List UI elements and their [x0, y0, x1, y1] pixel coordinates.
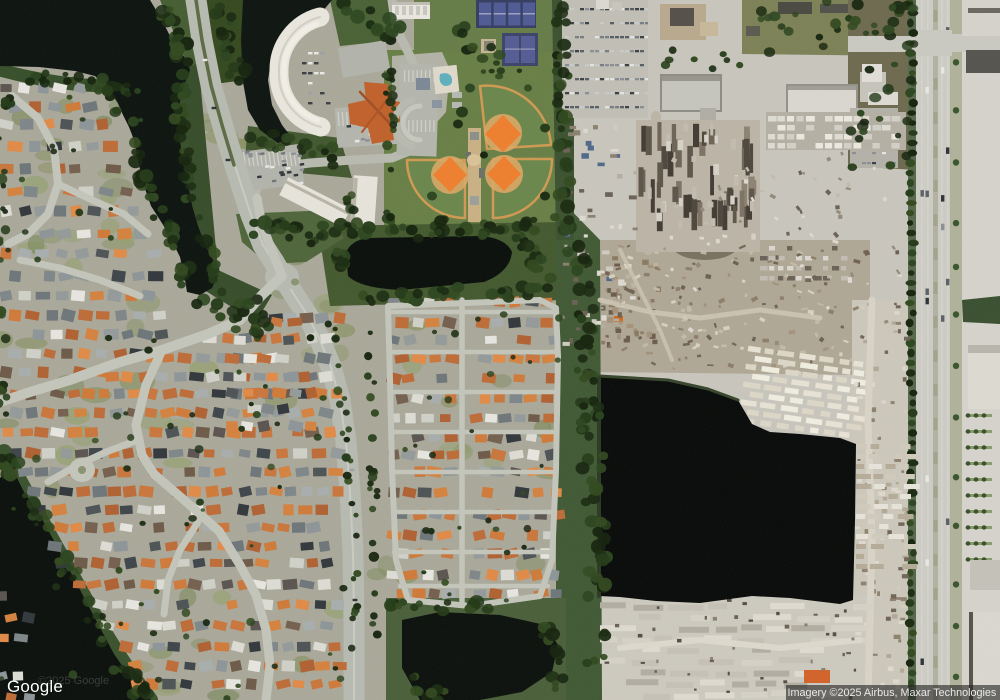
svg-text:Imagery ©2025 Airbus, Maxar Te: Imagery ©2025 Airbus, Maxar Technologies: [788, 687, 997, 699]
svg-text:Google: Google: [7, 677, 63, 696]
